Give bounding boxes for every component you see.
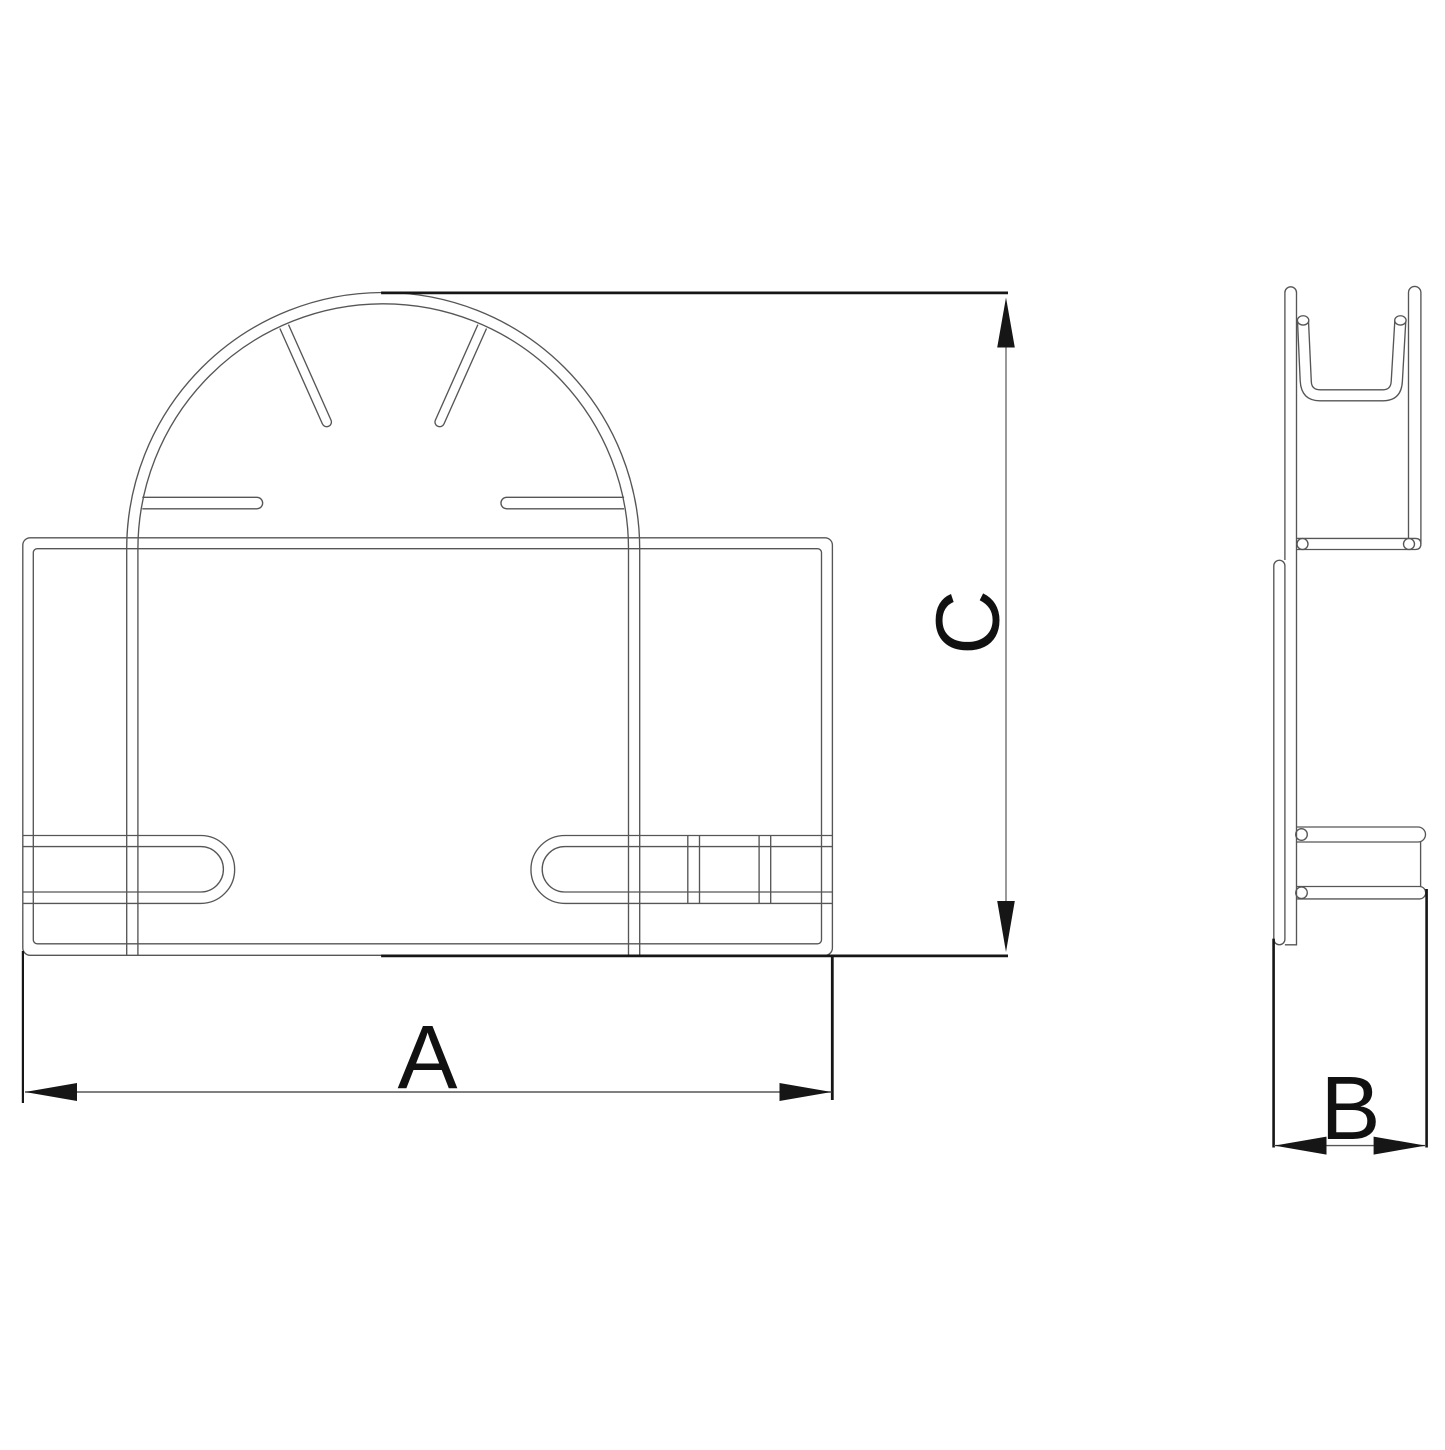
svg-text:B: B [1320, 1059, 1380, 1159]
svg-text:C: C [918, 590, 1018, 655]
svg-text:A: A [397, 1008, 457, 1108]
